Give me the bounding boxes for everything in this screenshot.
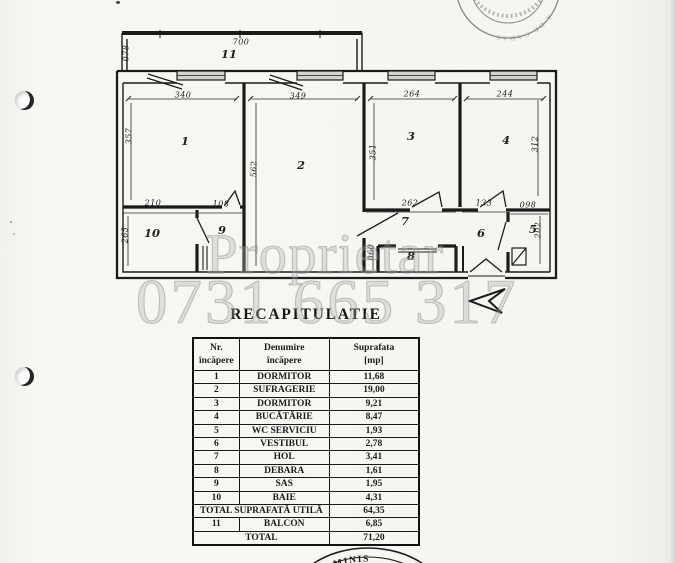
dim-room10-height: 265 [121,227,130,244]
total-util-row: TOTAL SUPRAFATĂ UTILĂ 64,35 [193,505,419,518]
cell-nr: 7 [193,451,239,464]
cell-name: DORMITOR [239,397,329,410]
header-denumire: Denumire încăpere [239,338,329,371]
cell-nr: 6 [193,438,239,451]
table-row: 8 DEBARA 1,61 [193,464,419,477]
dim-room7-width: 262 [402,199,419,208]
cell-area: 19,00 [329,384,419,397]
cell-area: 2,78 [329,438,419,451]
cell-nr: 2 [193,384,239,397]
room-label-10: 10 [144,226,160,240]
room-label-3: 3 [407,129,415,143]
cell-name: BALCON [239,518,329,531]
dim-room5-width: 098 [520,201,537,210]
room-label-9: 9 [218,223,226,237]
cell-nr: 1 [193,371,239,384]
table-row: 1 DORMITOR 11,68 [193,371,419,384]
cell-name: SAS [239,478,329,491]
dim-room1-height: 357 [125,128,134,145]
cell-total-util-area: 64,35 [329,505,419,518]
svg-text:MINIS: MINIS [332,554,370,563]
cell-area: 4,31 [329,491,419,504]
punch-hole-bottom [15,367,34,386]
balcony-row: 11 BALCON 6,85 [193,518,419,531]
dim-room2-width: 349 [290,92,307,101]
exterior-walls [117,71,556,278]
cell-nr: 9 [193,478,239,491]
cell-nr: 8 [193,464,239,477]
header-suprafata-line1: Suprafata [330,342,418,355]
room-label-5: 5 [529,222,537,236]
header-suprafata-line2: [mp] [330,355,418,368]
cell-total-area: 71,20 [329,531,419,545]
total-row: TOTAL 71,20 [193,531,419,545]
cell-name: HOL [239,451,329,464]
dim-room2-height: 562 [250,161,259,178]
cell-name: BAIE [239,491,329,504]
cell-nr: 10 [193,491,239,504]
cell-name: DORMITOR [239,371,329,384]
cell-name: SUFRAGERIE [239,384,329,397]
scan-speck [116,1,120,4]
cell-name: VESTIBUL [239,438,329,451]
dim-room3-height: 351 [369,144,378,161]
header-denumire-line2: încăpere [240,355,329,368]
dim-room6-width: 133 [476,199,493,208]
room-label-4: 4 [502,133,510,147]
table-row: 5 WC SERVICIU 1,93 [193,424,419,437]
scan-speck [10,221,12,223]
recap-title: RECAPITULATIE [192,306,420,324]
cell-area: 8,47 [329,411,419,424]
cell-area: 6,85 [329,518,419,531]
window-symbols [177,71,537,80]
dim-room4-width: 244 [497,90,514,99]
oval-stamp-text: MINIS [332,554,370,563]
table-row: 4 BUCĂTĂRIE 8,47 [193,411,419,424]
dim-room1-width: 340 [175,91,192,100]
scan-edge-shadow [669,0,676,563]
dim-room4-height: 312 [531,136,540,153]
dim-room8-height: 060 [367,244,376,261]
table-row: 7 HOL 3,41 [193,451,419,464]
cell-name: BUCĂTĂRIE [239,411,329,424]
header-nr: Nr. încăpere [193,338,239,371]
header-nr-line2: încăpere [194,355,239,368]
cell-nr: 5 [193,424,239,437]
room-label-6: 6 [477,226,485,240]
table-row: 3 DORMITOR 9,21 [193,397,419,410]
cell-name: WC SERVICIU [239,424,329,437]
room-label-1: 1 [181,134,189,148]
scan-speck [13,233,15,235]
table-row: 10 BAIE 4,31 [193,491,419,504]
cell-area: 9,21 [329,397,419,410]
cell-area: 1,95 [329,478,419,491]
cell-nr: 3 [193,397,239,410]
table-header-row: Nr. încăpere Denumire încăpere Suprafata… [193,338,419,371]
table-row: 2 SUFRAGERIE 19,00 [193,384,419,397]
cell-total-util-label: TOTAL SUPRAFATĂ UTILĂ [193,505,329,518]
room-label-11: 11 [221,47,237,61]
round-stamp-top: A DE CADAS [456,0,560,42]
punch-hole-top [15,91,34,110]
dim-room10-width: 210 [145,199,162,208]
cell-area: 1,61 [329,464,419,477]
dim-room3-width: 264 [404,90,421,99]
cell-area: 1,93 [329,424,419,437]
table-row: 6 VESTIBUL 2,78 [193,438,419,451]
dimension-lines [123,96,548,270]
recap-table: Nr. încăpere Denumire încăpere Suprafata… [192,337,420,546]
cell-area: 11,68 [329,371,419,384]
scanned-floor-plan-page: A DE CADAS MINIS 700 078 340 357 349 562… [0,0,676,563]
table-row: 9 SAS 1,95 [193,478,419,491]
room-label-8: 8 [407,249,415,263]
room-label-7: 7 [401,214,409,228]
cell-nr: 4 [193,411,239,424]
cell-total-label: TOTAL [193,531,329,545]
balcony-outline [122,30,362,71]
interior-walls [123,83,550,272]
cell-nr: 11 [193,518,239,531]
header-nr-line1: Nr. [194,342,239,355]
north-arrow-icon [470,289,505,313]
dim-balcony-width: 700 [233,38,250,47]
oval-stamp-bottom: MINIS [288,548,448,563]
cell-name: DEBARA [239,464,329,477]
room-label-2: 2 [297,158,305,172]
closet-shelf-lines [203,246,437,270]
wc-fixture [512,248,526,265]
dim-room9-width: 108 [213,200,230,209]
door-swings [147,74,506,272]
cell-area: 3,41 [329,451,419,464]
header-suprafata: Suprafata [mp] [329,338,419,371]
dim-balcony-depth: 078 [122,45,131,62]
header-denumire-line1: Denumire [240,342,329,355]
